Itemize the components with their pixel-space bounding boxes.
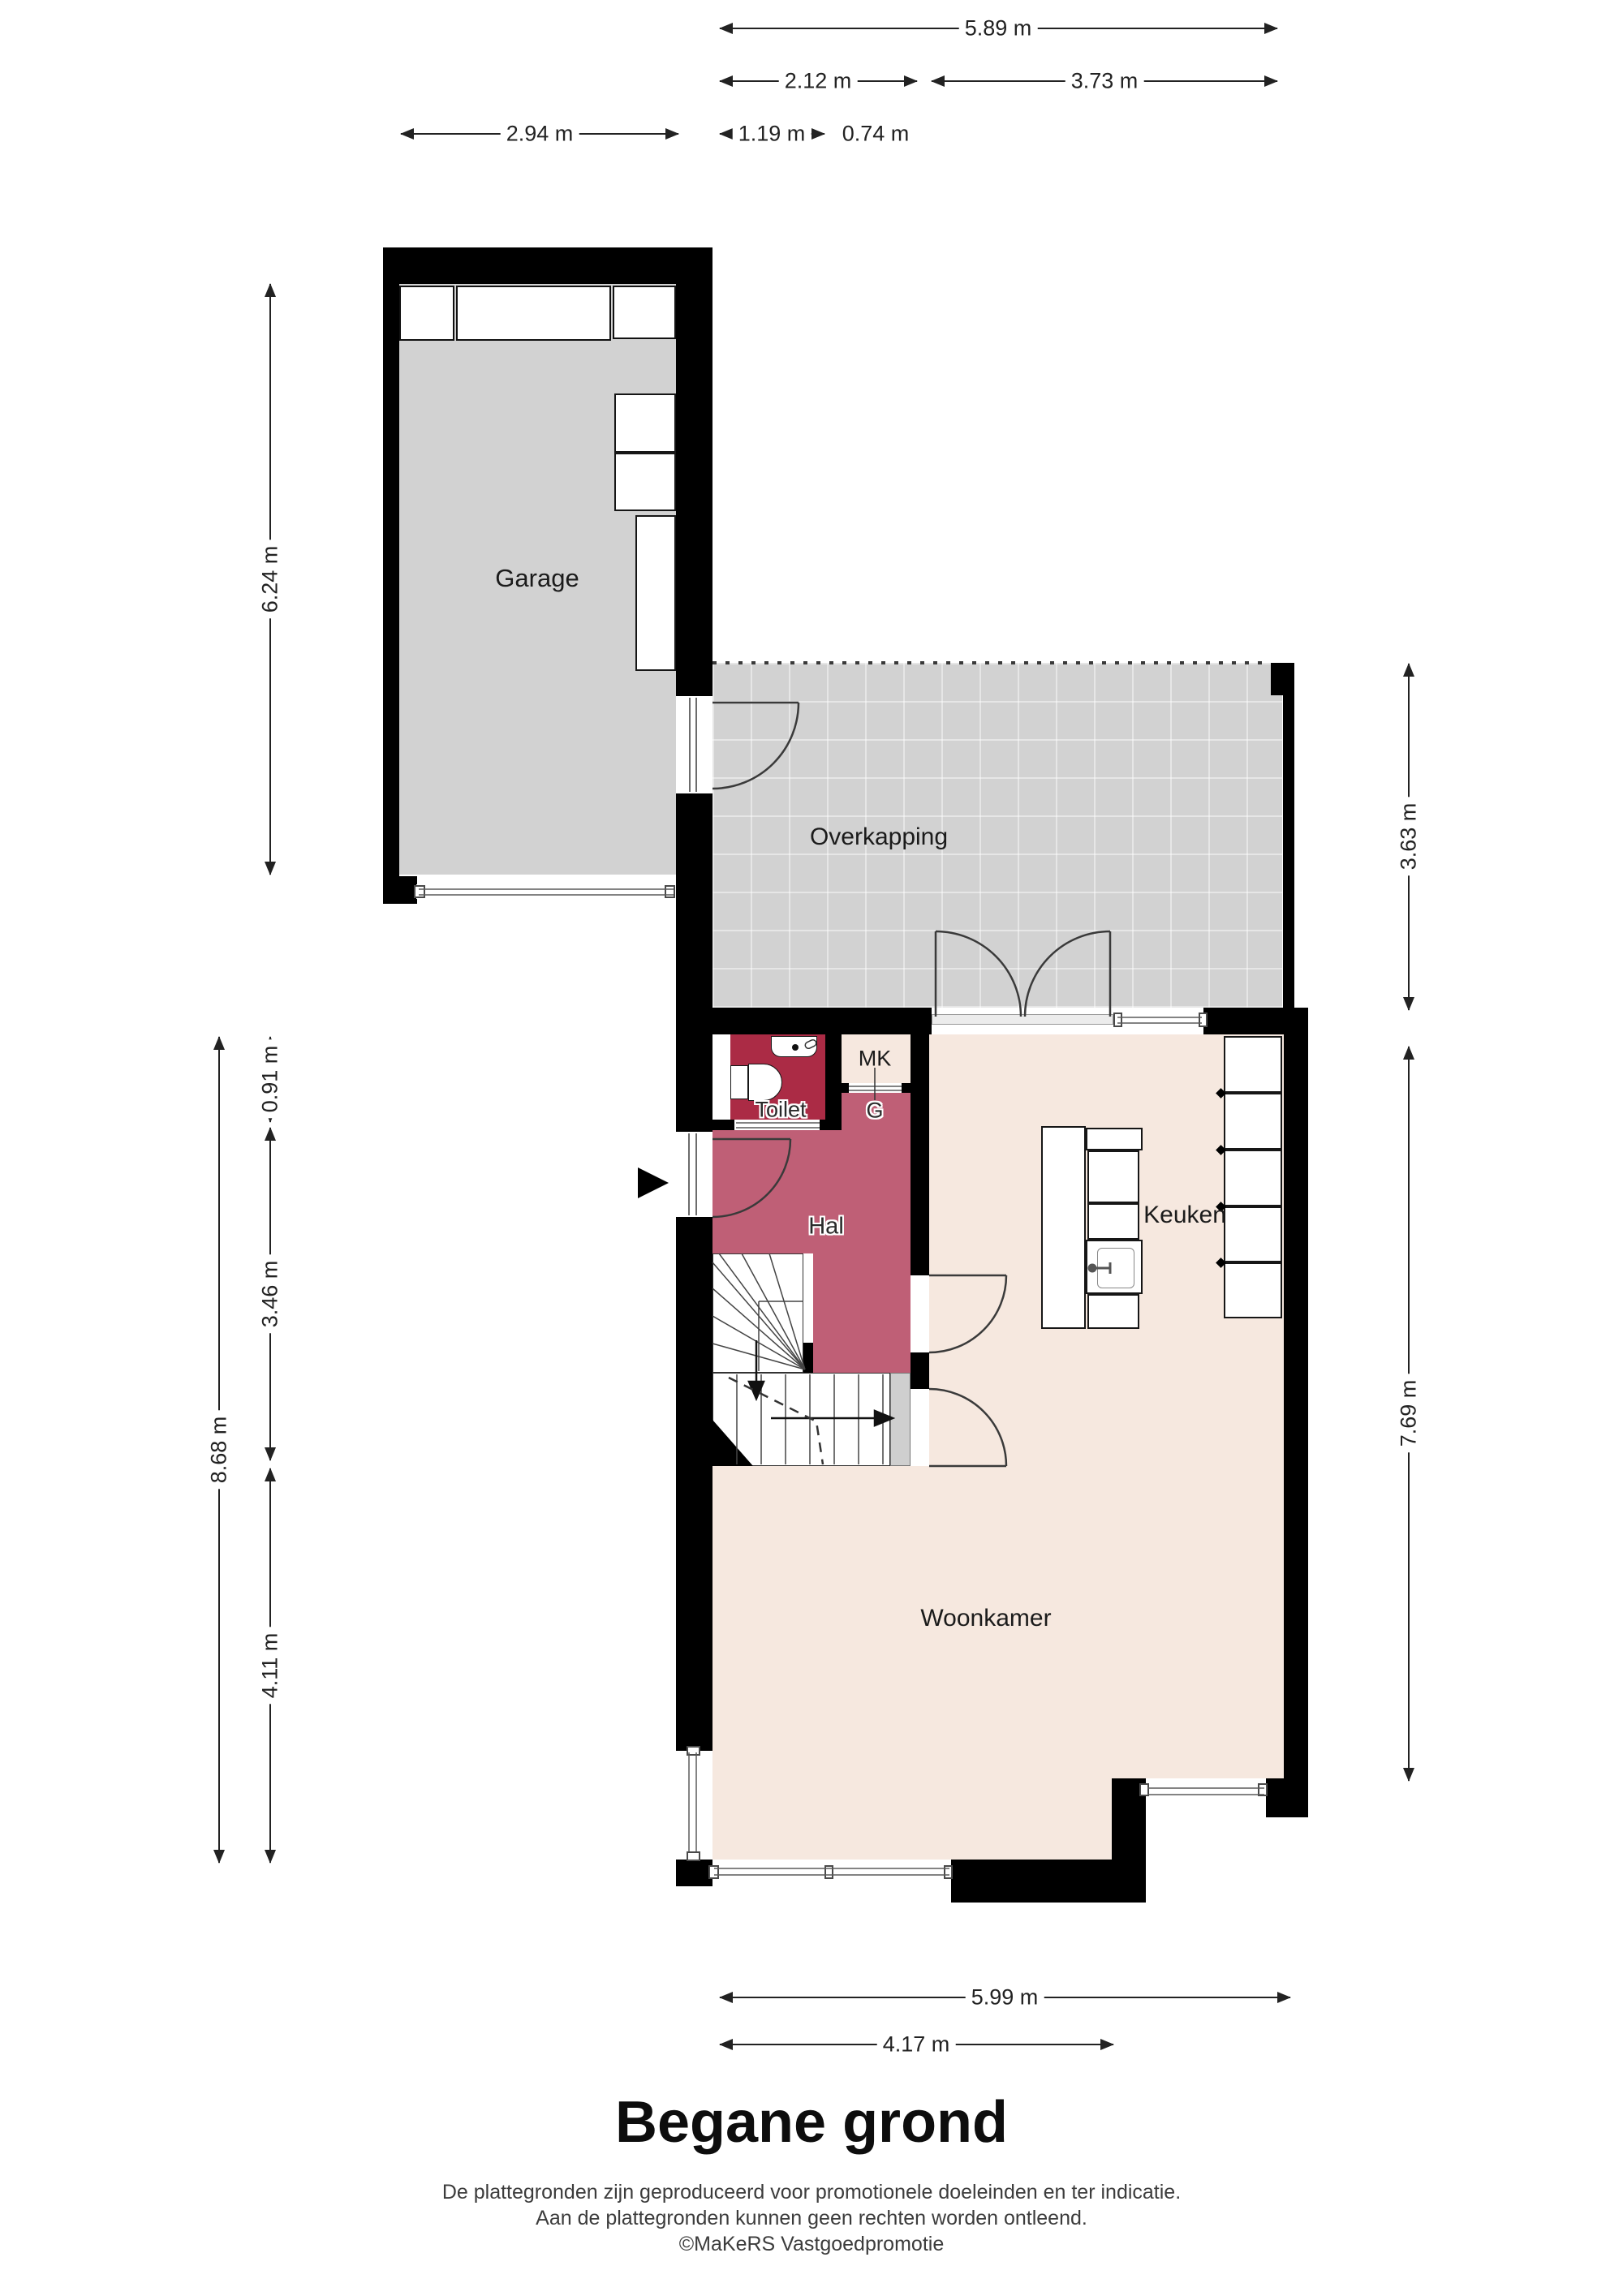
room-label-g: G (866, 1099, 883, 1124)
french-doors-threshold (932, 1014, 1113, 1025)
wall (820, 1120, 842, 1130)
copyright-line: ©MaKeRS Vastgoedpromotie (0, 2233, 1623, 2256)
overkapping-floor (712, 663, 1282, 1008)
kitchen-wall-cabinet (1224, 1093, 1282, 1150)
wall (712, 1120, 734, 1130)
room-label-overkapping: Overkapping (810, 823, 948, 851)
dimension-label: 0.91 m (257, 1040, 284, 1119)
dimension-label: 6.24 m (257, 540, 284, 619)
garage-rear-sliding-door (416, 884, 676, 899)
dimension-label: 3.63 m (1396, 798, 1423, 876)
kitchen-island-cabinet (1086, 1128, 1143, 1150)
garage-side-door-opening (676, 696, 712, 793)
wall (676, 793, 712, 1008)
kitchen-sink-basin (1097, 1248, 1134, 1288)
room-label-garage: Garage (495, 564, 579, 593)
window-sill (944, 1865, 953, 1879)
room-label-mk: MK (859, 1047, 892, 1072)
window-sill (1139, 1783, 1149, 1796)
wall (1284, 1008, 1308, 1778)
wall (1283, 694, 1294, 1008)
wall (676, 1860, 712, 1886)
kitchen-island-cabinet (1087, 1150, 1139, 1203)
front-door-opening (676, 1132, 712, 1217)
disclaimer-line: De plattegronden zijn geproduceerd voor … (0, 2181, 1623, 2204)
kitchen-wall-cabinet (1224, 1206, 1282, 1262)
room-label-woonkamer: Woonkamer (920, 1605, 1051, 1632)
window-sill (687, 1746, 700, 1756)
bay-window (1146, 1778, 1266, 1811)
dimension-label: 1.19 m (733, 121, 811, 148)
kitchen-wall-cabinet (1224, 1036, 1282, 1093)
window-sill (1113, 1013, 1122, 1027)
dimension-label: 5.99 m (966, 1984, 1044, 2011)
disclaimer-line: Aan de plattegronden kunnen geen rechten… (0, 2207, 1623, 2230)
dimension-label: 3.46 m (257, 1255, 284, 1334)
woonkamer-floor-left (712, 1466, 929, 1860)
garage-door (456, 286, 611, 341)
wall (911, 1008, 929, 1275)
dimension-label: 8.68 m (206, 1411, 233, 1490)
kitchen-island (1041, 1126, 1086, 1329)
dimension-label: 0.74 m (837, 121, 915, 148)
floor-plan-page: Garage Overkapping Toilet MK G Hal Keuke… (0, 0, 1623, 2296)
garage-cabinet (614, 393, 676, 453)
stairs-winder (712, 1253, 803, 1373)
wall (911, 1352, 929, 1389)
window-sill (414, 885, 425, 898)
window-sill (708, 1865, 719, 1879)
woonkamer-floor-bottom (929, 1778, 1112, 1860)
stair-divider-wall (803, 1343, 813, 1373)
window-sill (1258, 1783, 1268, 1796)
sink-icon (771, 1036, 817, 1057)
wall (676, 1008, 712, 1132)
dimension-label: 4.17 m (877, 2032, 956, 2058)
wall (676, 1217, 712, 1752)
hal-keuken-door-opening (911, 1275, 929, 1352)
left-wall-window (676, 1751, 712, 1856)
toilet-icon (730, 1065, 748, 1099)
kitchen-wall-cabinet (1224, 1150, 1282, 1206)
room-label-keuken: Keuken (1143, 1202, 1226, 1229)
dimension-label: 2.94 m (501, 121, 579, 148)
garage-cabinet (635, 515, 676, 671)
room-label-toilet: Toilet (755, 1098, 806, 1123)
wall (842, 1083, 849, 1093)
window-sill (665, 885, 675, 898)
entrance-arrow-icon (638, 1167, 669, 1198)
garage-cabinet (614, 453, 676, 511)
window-sill (687, 1851, 700, 1861)
wall (825, 1008, 842, 1122)
dimension-label: 3.73 m (1065, 68, 1144, 95)
wall (383, 247, 712, 284)
window-sill (824, 1865, 833, 1879)
dimension-label: 7.69 m (1396, 1374, 1423, 1453)
window-sill (1199, 1013, 1208, 1027)
garage-window (399, 286, 454, 341)
overkapping-post (1271, 663, 1294, 695)
dimension-label: 4.11 m (257, 1627, 284, 1705)
stairs-landing-strip (890, 1373, 911, 1466)
wall (1266, 1778, 1308, 1817)
wall (383, 247, 399, 876)
mk-door-threshold (849, 1083, 902, 1093)
page-title: Begane grond (0, 2089, 1623, 2156)
kitchen-island-cabinet (1087, 1294, 1139, 1329)
wall (676, 1008, 932, 1034)
room-label-hal: Hal (808, 1214, 844, 1240)
dimension-label: 2.12 m (779, 68, 858, 95)
toilet-side-strip (712, 1034, 730, 1120)
dimension-label: 5.89 m (959, 15, 1038, 42)
wall (383, 876, 417, 904)
wall (676, 247, 712, 696)
kitchen-wall-cabinet (1224, 1262, 1282, 1318)
wall (951, 1860, 1146, 1903)
hal-woonkamer-door-opening (911, 1389, 929, 1466)
wall (902, 1083, 911, 1093)
garage-window (613, 286, 676, 339)
keuken-window-opening (1116, 1008, 1203, 1034)
kitchen-island-cabinet (1087, 1203, 1139, 1240)
hal-floor-lower (813, 1253, 911, 1373)
